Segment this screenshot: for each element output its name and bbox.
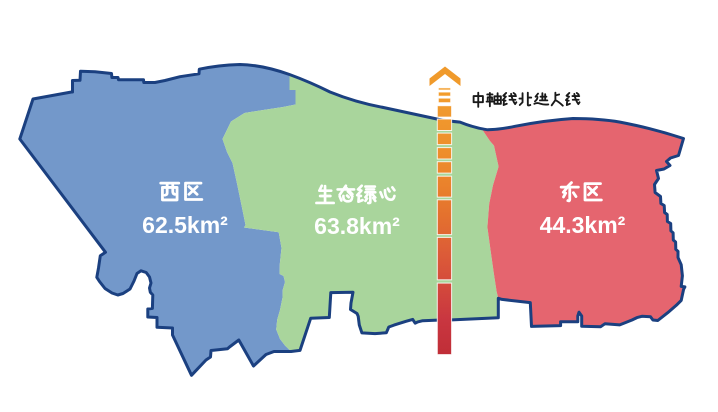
svg-text:63.8km²: 63.8km² bbox=[314, 213, 400, 239]
svg-text:44.3km²: 44.3km² bbox=[540, 212, 626, 238]
svg-text:62.5km²: 62.5km² bbox=[142, 212, 228, 238]
